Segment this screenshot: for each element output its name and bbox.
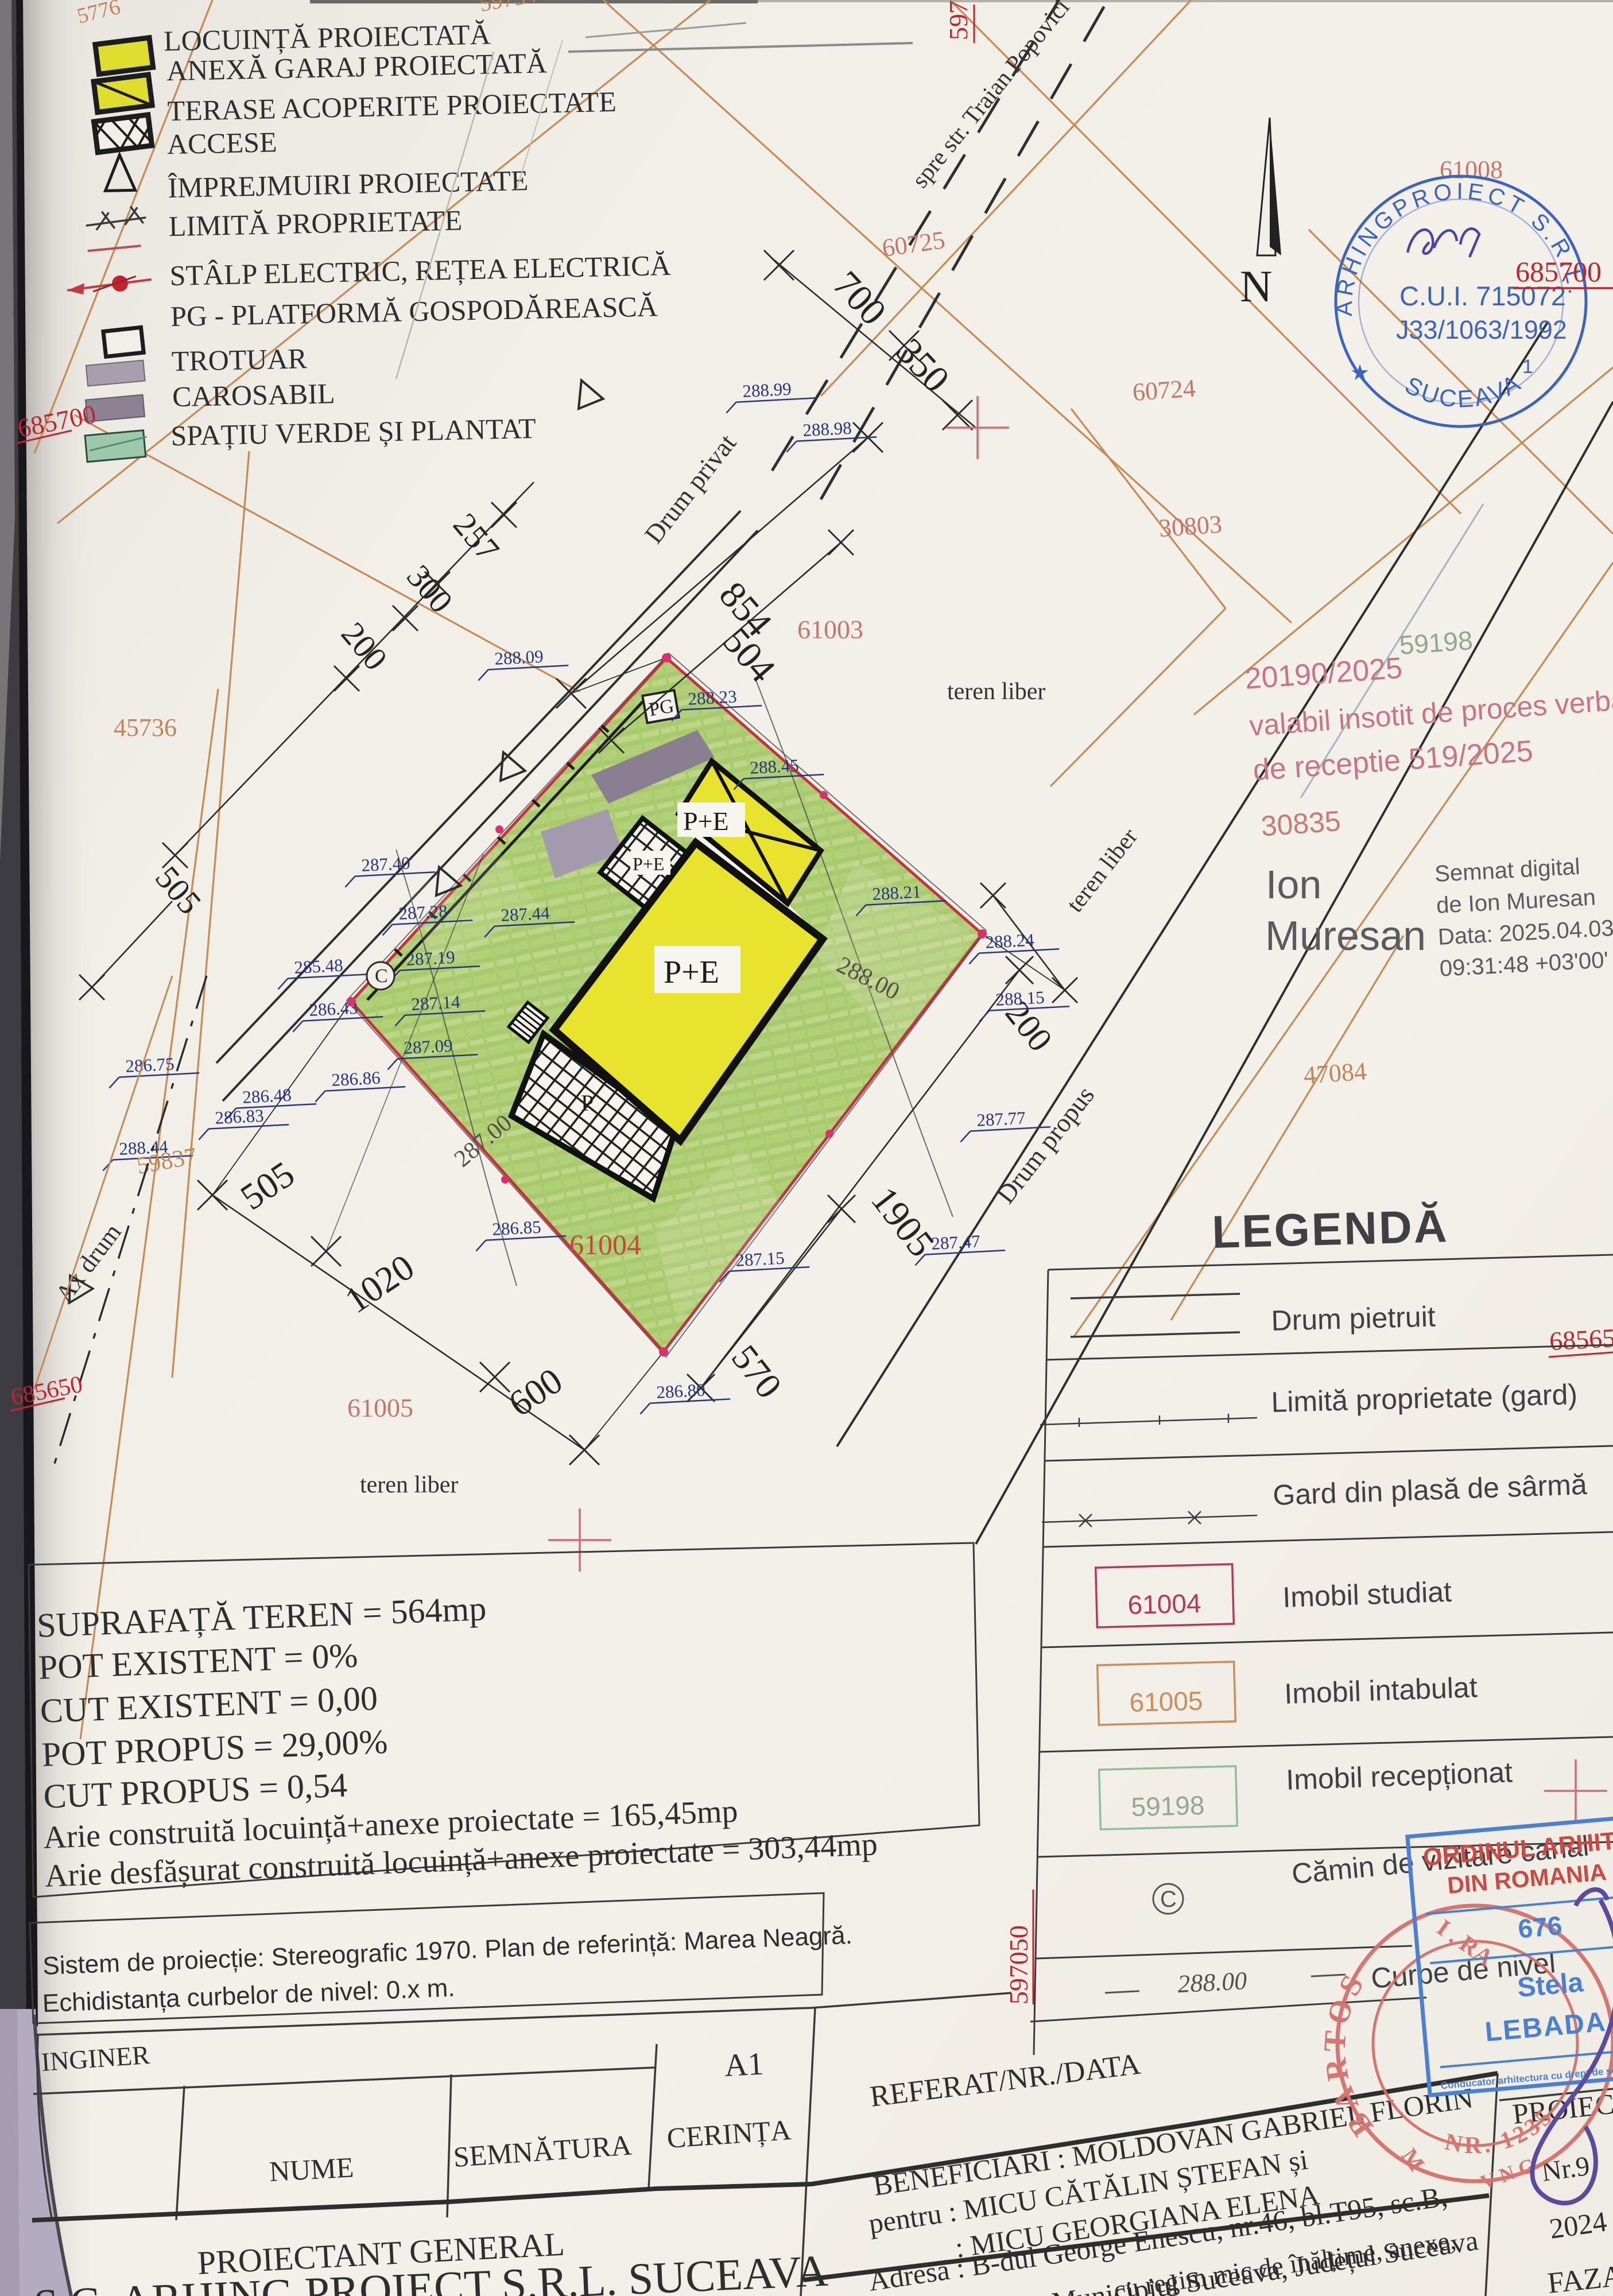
svg-text:59198: 59198: [1131, 1790, 1205, 1822]
svg-text:286.85: 286.85: [492, 1217, 542, 1239]
svg-text:61004: 61004: [569, 1228, 641, 1261]
svg-text:286.80: 286.80: [656, 1380, 706, 1402]
svg-text:288.45: 288.45: [750, 755, 800, 778]
svg-text:teren liber: teren liber: [360, 1472, 458, 1498]
svg-text:286.75: 286.75: [125, 1054, 175, 1076]
svg-text:287.19: 287.19: [406, 947, 456, 969]
svg-text:286.48: 286.48: [242, 1085, 292, 1107]
svg-text:286.86: 286.86: [331, 1068, 381, 1090]
svg-text:Muresan: Muresan: [1265, 913, 1426, 959]
svg-text:Imobil intabulat: Imobil intabulat: [1284, 1671, 1478, 1710]
svg-text:P+E: P+E: [683, 806, 729, 836]
svg-text:287.09: 287.09: [404, 1035, 453, 1058]
svg-text:★: ★: [1350, 361, 1370, 385]
svg-text:61005: 61005: [347, 1393, 413, 1422]
svg-text:287.15: 287.15: [735, 1248, 785, 1270]
svg-text:685650: 685650: [1549, 1322, 1613, 1356]
svg-text:60724: 60724: [1131, 374, 1196, 406]
svg-text:288.09: 288.09: [494, 646, 544, 669]
svg-text:Stela: Stela: [1516, 1967, 1584, 2003]
svg-text:P: P: [581, 1090, 594, 1116]
svg-text:288.23: 288.23: [688, 687, 738, 709]
svg-text:288.99: 288.99: [742, 379, 792, 401]
svg-text:30803: 30803: [1158, 510, 1223, 542]
svg-text:C: C: [375, 965, 388, 987]
svg-text:288.00: 288.00: [1177, 1967, 1247, 1998]
svg-text:685700: 685700: [1515, 255, 1602, 288]
svg-text:TROTUAR: TROTUAR: [171, 342, 308, 377]
svg-text:PG: PG: [647, 695, 676, 720]
svg-text:P+E: P+E: [664, 955, 719, 990]
svg-text:287.77: 287.77: [976, 1108, 1026, 1130]
svg-text:285.48: 285.48: [294, 955, 344, 978]
svg-text:P+E: P+E: [633, 854, 664, 874]
svg-text:61004: 61004: [1127, 1588, 1201, 1620]
svg-text:Ion: Ion: [1266, 862, 1321, 907]
svg-text:30835: 30835: [1260, 805, 1342, 843]
svg-text:Imobil studiat: Imobil studiat: [1282, 1576, 1452, 1614]
svg-text:ACCESE: ACCESE: [166, 126, 277, 160]
svg-text:45736: 45736: [114, 713, 177, 742]
svg-text:61005: 61005: [1129, 1686, 1203, 1717]
svg-text:287.44: 287.44: [501, 903, 550, 925]
svg-text:61003: 61003: [797, 615, 863, 644]
svg-text:C: C: [1160, 1887, 1177, 1912]
svg-text:286.83: 286.83: [215, 1106, 265, 1128]
svg-text:288.24: 288.24: [985, 930, 1035, 952]
svg-text:Drum pietruit: Drum pietruit: [1271, 1301, 1436, 1337]
svg-text:287.28: 287.28: [398, 901, 448, 924]
svg-text:287.14: 287.14: [411, 992, 461, 1014]
svg-text:288.21: 288.21: [872, 882, 922, 904]
svg-text:A1: A1: [723, 2046, 765, 2083]
svg-text:teren liber: teren liber: [947, 678, 1045, 705]
svg-text:287.40: 287.40: [361, 853, 411, 875]
svg-text:LIMITĂ PROPRIETATE: LIMITĂ PROPRIETATE: [168, 204, 462, 242]
svg-text:287.47: 287.47: [931, 1231, 981, 1254]
svg-text:47084: 47084: [1302, 1057, 1367, 1089]
svg-text:CAROSABIL: CAROSABIL: [172, 377, 335, 413]
svg-text:J33/1063/1992: J33/1063/1992: [1396, 315, 1567, 344]
svg-text:1: 1: [1522, 356, 1533, 378]
svg-text:N: N: [1240, 261, 1272, 311]
svg-text:288.98: 288.98: [802, 418, 852, 440]
svg-text:NUME: NUME: [269, 2151, 355, 2188]
svg-text:59198: 59198: [1398, 625, 1474, 660]
svg-text:LEGENDĂ: LEGENDĂ: [1211, 1200, 1449, 1258]
svg-text:59700: 59700: [944, 0, 973, 40]
svg-text:676: 676: [1517, 1910, 1563, 1944]
svg-text:288.15: 288.15: [995, 987, 1045, 1010]
